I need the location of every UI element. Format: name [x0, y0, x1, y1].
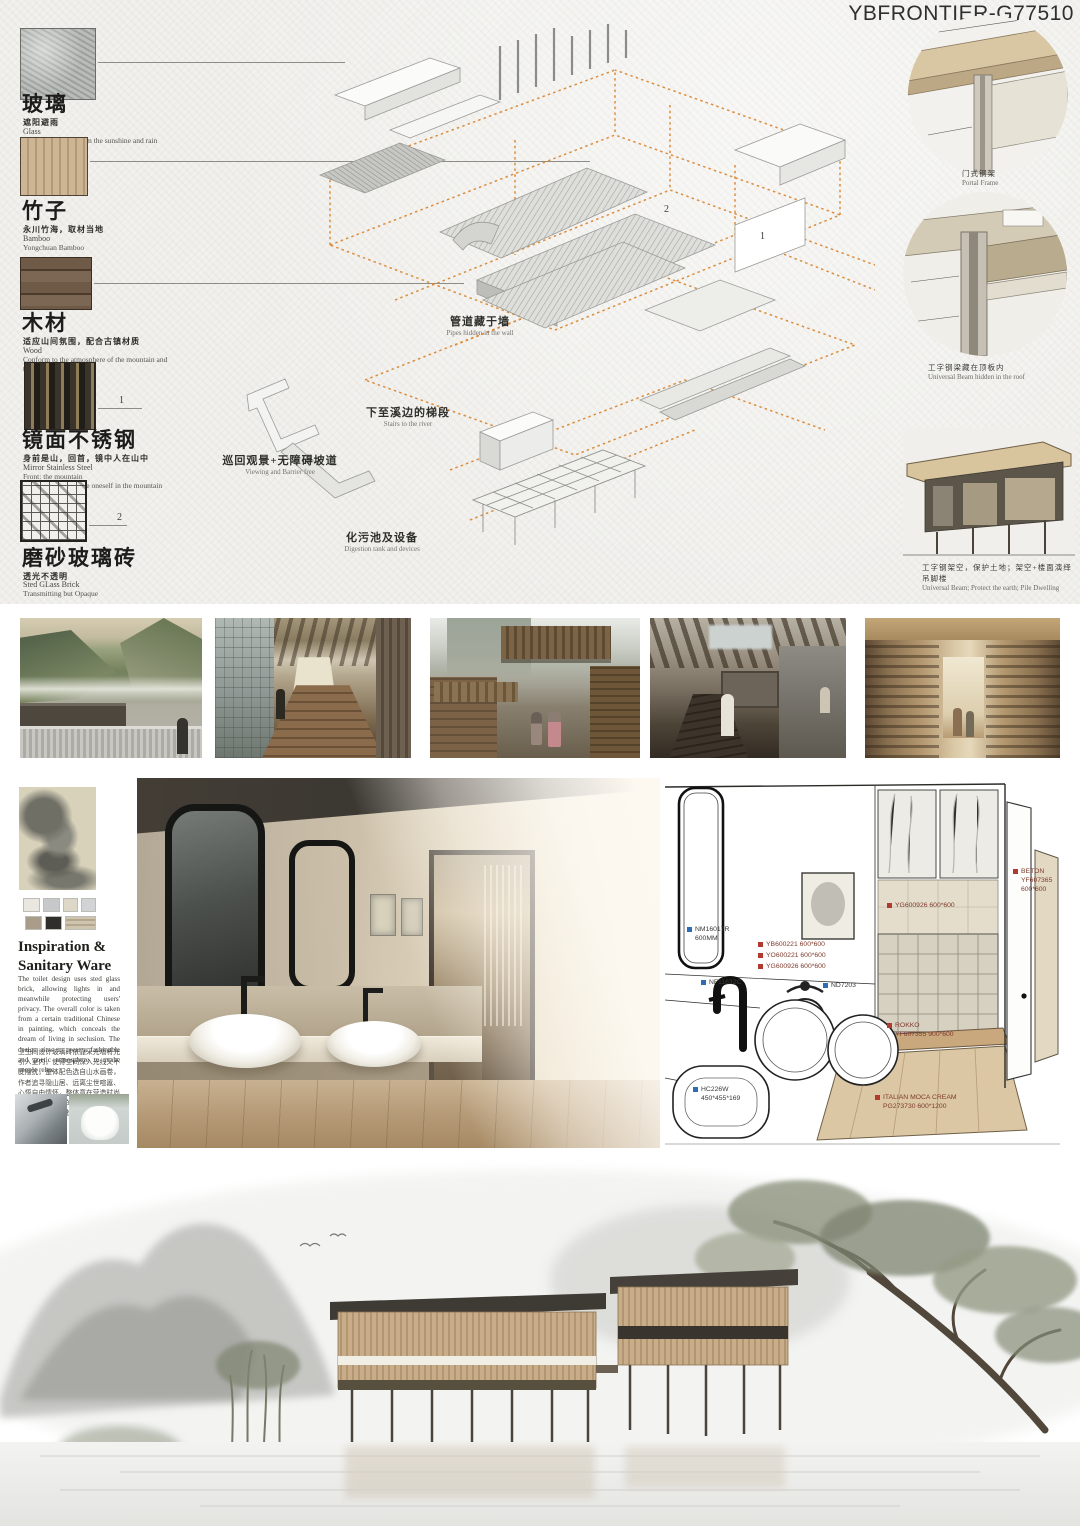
palette-swatch-lightgray	[81, 898, 96, 912]
material-en-mirror-steel: Mirror Stainless Steel	[23, 463, 93, 472]
axon-note-stairs: 下至溪边的梯段 Stairs to the river	[366, 404, 450, 428]
detail-callout-pile-dwelling	[903, 428, 1075, 558]
diagram-label-tile-code-2: YO600221 600*600	[758, 952, 826, 961]
leader-line-mirror-steel	[98, 408, 142, 409]
bathroom-annotated-diagram: NM16017R 600MM YB600221 600*600 YO600221…	[665, 778, 1060, 1148]
material-swatch-bamboo	[20, 137, 88, 196]
material-title-bamboo: 竹子	[22, 201, 68, 222]
detail-caption-portal-frame: 门式钢架 Portal Frame	[962, 168, 998, 187]
material-swatch-wood	[20, 257, 92, 310]
diagram-label-floor-code: ITALIAN MOCA CREAM PG273730 600*1200	[875, 1094, 957, 1112]
material-en-glass: Glass	[23, 127, 41, 136]
diagram-label-wall-tile-code: YG600926 600*600	[887, 902, 955, 911]
beam-roof-detail-drawing	[903, 192, 1067, 356]
sunlight-overlay	[137, 778, 660, 1148]
material-swatch-mirror-steel	[24, 362, 96, 430]
detail-callout-beam-roof	[903, 192, 1067, 356]
palette-swatch-striped	[65, 916, 96, 930]
product-photo-faucet	[15, 1094, 67, 1144]
material-marker-2: 2	[117, 512, 122, 523]
material-swatch-glass	[20, 28, 96, 100]
diagram-label-tile-code-1: YB600221 600*600	[758, 941, 825, 950]
detail-caption-beam-roof: 工字钢梁藏在顶板内 Universal Beam hidden in the r…	[928, 362, 1025, 381]
diagram-label-faucet-code: NF11632C	[701, 979, 741, 988]
material-en-glass-brick: Sted GLass Brick	[23, 580, 79, 589]
palette-swatch-gray	[43, 898, 60, 912]
ink-painting-thumbnail	[19, 787, 96, 890]
render-photo-courtyard	[430, 618, 640, 758]
diagram-label-rokko-code: ROKKO YF607355 900*600	[887, 1022, 954, 1040]
watercolor-elevation-render	[0, 1150, 1080, 1526]
axon-marker-1: 1	[760, 231, 765, 242]
axon-note-pipes: 管道藏于墙 Pipes hidden in the wall	[446, 313, 513, 337]
palette-swatch-taupe	[25, 916, 42, 930]
material-title-glass: 玻璃	[22, 94, 68, 115]
presentation-board: YBFRONTIER-G77510 玻璃 遮阳避雨 Glass To prote…	[0, 0, 1080, 1526]
material-swatch-glass-brick	[20, 480, 87, 542]
leader-line-glass-brick	[89, 525, 127, 526]
render-photo-corridor-deck	[215, 618, 411, 758]
pile-dwelling-section-drawing	[903, 428, 1075, 558]
diagram-label-holder-code: ND7203	[823, 982, 856, 991]
material-en-bamboo: Bamboo	[23, 234, 50, 243]
detail-caption-pile-dwelling: 工字钢架空，保护土地；架空+楼面演绎吊脚楼 Universal Beam; Pr…	[922, 562, 1078, 592]
product-photo-toilet	[69, 1094, 129, 1144]
axon-marker-2: 2	[664, 204, 669, 215]
axon-note-barrier-free: 巡回观景+无障碍坡道 Viewing and Barrier free	[222, 452, 337, 476]
render-photo-walkway	[650, 618, 846, 758]
palette-swatch-beige	[63, 898, 78, 912]
material-desc-glass-brick: Transmitting but Opaque	[23, 589, 98, 598]
detail-callout-portal-frame	[908, 15, 1068, 175]
material-title-mirror-steel: 镜面不锈钢	[22, 430, 137, 451]
diagram-label-tile-code-3: YG600926 600*600	[758, 963, 826, 972]
diagram-label-beton-code: BETON YF607365 600*600	[1013, 868, 1059, 894]
render-photo-village-view	[20, 618, 202, 758]
material-en-wood: Wood	[23, 346, 42, 355]
material-marker-1: 1	[119, 395, 124, 406]
sanitary-heading: Inspiration & Sanitary Ware	[18, 938, 111, 976]
diagram-label-toilet-code: HC226W 450*455*169	[693, 1086, 740, 1104]
material-desc-bamboo: Yongchuan Bamboo	[23, 243, 84, 252]
axon-note-digestion-tank: 化污池及设备 Digestion tank and devices	[344, 529, 420, 553]
material-title-glass-brick: 磨砂玻璃砖	[22, 548, 137, 569]
diagram-label-mirror-code: NM16017R 600MM	[687, 926, 729, 944]
palette-swatch-cream	[23, 898, 40, 912]
material-title-wood: 木材	[22, 313, 68, 334]
palette-swatch-charcoal	[45, 916, 62, 930]
bathroom-interior-render	[137, 778, 660, 1148]
exploded-axonometric-diagram	[215, 0, 875, 595]
portal-frame-detail-drawing	[908, 15, 1068, 175]
render-photo-wood-corridor	[865, 618, 1060, 758]
